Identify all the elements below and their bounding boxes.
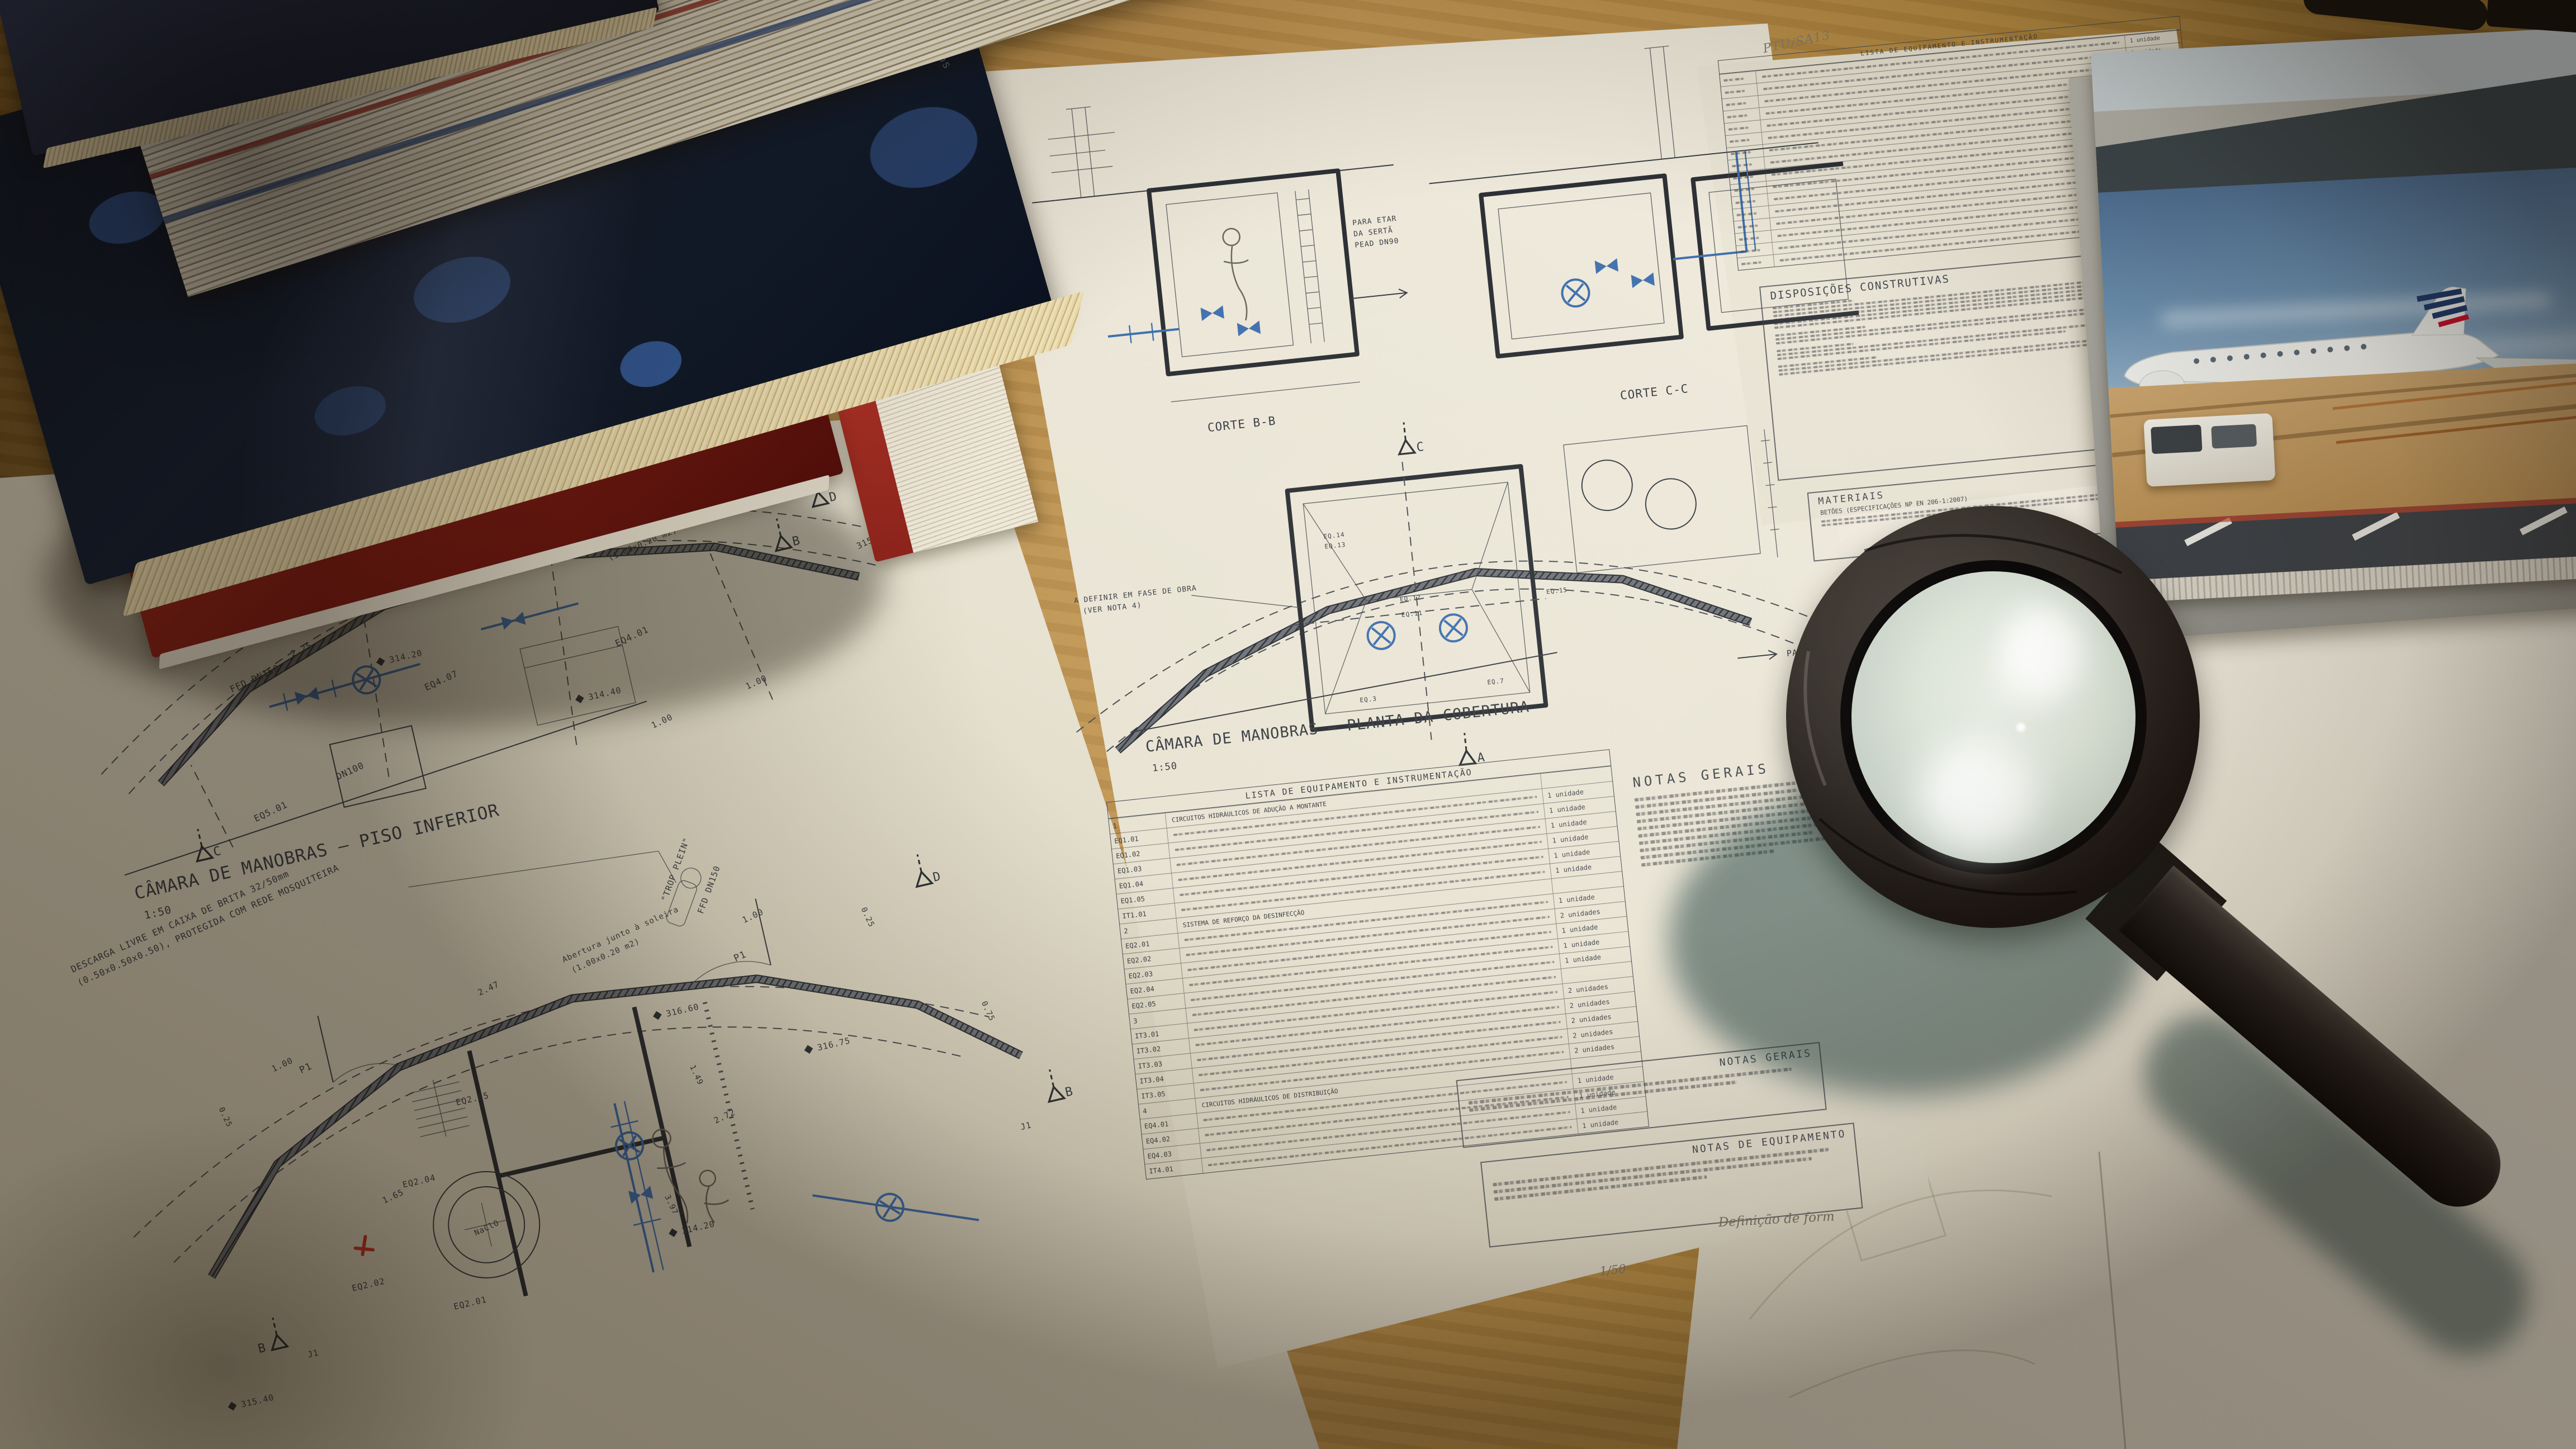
magnifier-lens	[1851, 571, 2135, 863]
level-label: 316.75	[816, 1035, 851, 1053]
corte-bb: PARA ETAR DA SERTÃ PEAD DN90 CORTE B-B	[1023, 76, 1420, 451]
dim-label: 0.75	[979, 1000, 996, 1022]
lens-highlight-top	[1999, 607, 2083, 702]
desk-scene: EQ1.05 FFD DN125 FFD DN150 DN100 EQ4.07 …	[0, 0, 2576, 1449]
dim-label: 2.47	[476, 979, 501, 997]
label: EQ.11	[1401, 609, 1423, 619]
dim-label: 0.25	[859, 906, 876, 929]
label: EQ.13	[1324, 541, 1346, 551]
label: DN100	[334, 760, 366, 782]
level-label: 314.20	[681, 1219, 716, 1236]
note: DA SERTÃ	[1353, 226, 1393, 239]
label: EQ.7	[1487, 677, 1505, 686]
dim-label: 2.72	[712, 1107, 737, 1125]
label: EQ5.01	[252, 799, 289, 824]
dim-label: 1.00	[650, 712, 674, 730]
apron-vehicle	[2143, 413, 2275, 487]
detail-title: CORTE C-C	[1620, 382, 1689, 402]
section-mark: B	[1064, 1085, 1075, 1100]
left-sheet-title-block: CÂMARA DE MANOBRAS – PISO INFERIOR 1:50	[113, 701, 670, 924]
lens-highlight-bottom	[1920, 741, 2037, 853]
section-mark: D	[828, 490, 839, 505]
drawing-scale: 1:50	[143, 903, 173, 922]
drawing-title: CÂMARA DE MANOBRAS – PISO INFERIOR	[132, 800, 501, 903]
notes-box-equipamento: NOTAS DE EQUIPAMENTO	[1480, 1123, 1863, 1247]
note: Abertura junto à soleira	[561, 905, 680, 965]
note: FFD DN150	[695, 864, 722, 915]
note: PEAD DN90	[1355, 237, 1400, 250]
section-mark: C	[1416, 440, 1426, 454]
section-mark: C	[212, 844, 223, 860]
dim-label: 1.49	[688, 1064, 704, 1087]
section-mark: D	[931, 869, 943, 885]
label: EQ.14	[1323, 531, 1345, 541]
detail-title: CORTE B-B	[1207, 414, 1277, 434]
corner-shade	[0, 0, 671, 503]
label: EQ.15	[1546, 586, 1568, 596]
lens-speck	[2016, 723, 2025, 732]
label: J1	[1019, 1120, 1033, 1132]
corner-shade	[0, 1002, 671, 1449]
note: PARA ETAR	[1352, 215, 1398, 228]
drawing-scale: 1:50	[1152, 760, 1178, 774]
pencil-scale-note: 1/50	[1599, 1262, 1626, 1278]
drawing-title: CÂMARA DE MANOBRAS – PLANTA DA COBERTURA	[1144, 698, 1530, 756]
label: EQ.3	[1360, 695, 1377, 704]
label: EQ.12	[1399, 594, 1421, 603]
